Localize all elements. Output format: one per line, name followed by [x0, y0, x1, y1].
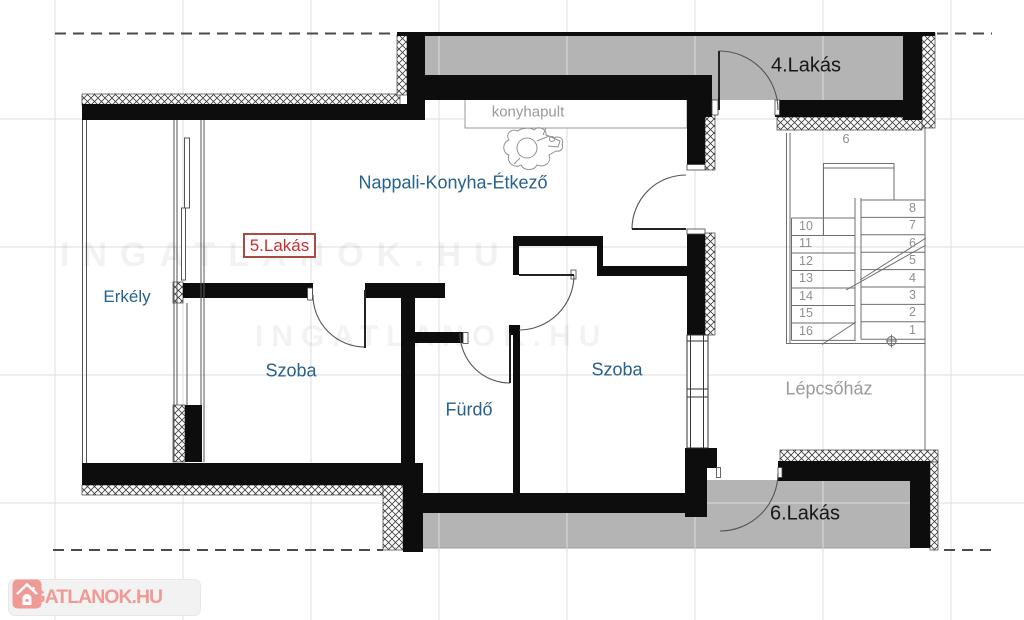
stair-step-number: 16 [792, 323, 854, 340]
stair-step-number: 6 [909, 235, 924, 252]
stair-numbers-left: 10111213141516 [792, 218, 854, 340]
stair-step-number: 5 [909, 252, 924, 269]
stair-step-number: 14 [792, 288, 854, 305]
ingatlanok-logo: INGATLANOK.HU [8, 579, 201, 616]
unit-label-5: 5.Lakás [243, 233, 316, 258]
floor-plan-canvas: INGATLANOK.HU INGATLANOK.HU konyhapult N… [0, 0, 1024, 620]
stair-step-number: 12 [792, 253, 854, 270]
stair-numbers-right: 87654321 [861, 200, 924, 339]
stairwell-window [687, 335, 708, 448]
unit-label-5-text: 5.Lakás [250, 236, 310, 256]
stair-step-number: 10 [792, 218, 854, 235]
stair-landing-number: 9 [838, 130, 854, 147]
stair-step-number: 7 [909, 217, 924, 234]
stair-step-number: 8 [909, 200, 924, 217]
stair-step-number: 1 [909, 322, 924, 339]
stair-step-number: 13 [792, 270, 854, 287]
stair-step-number: 11 [792, 235, 854, 252]
house-icon [12, 579, 42, 609]
stair-step-number: 15 [792, 305, 854, 322]
stair-step-number: 4 [909, 270, 924, 287]
sink-sketch-icon [504, 128, 563, 170]
stair-step-number: 3 [909, 287, 924, 304]
stair-step-number: 2 [909, 304, 924, 321]
